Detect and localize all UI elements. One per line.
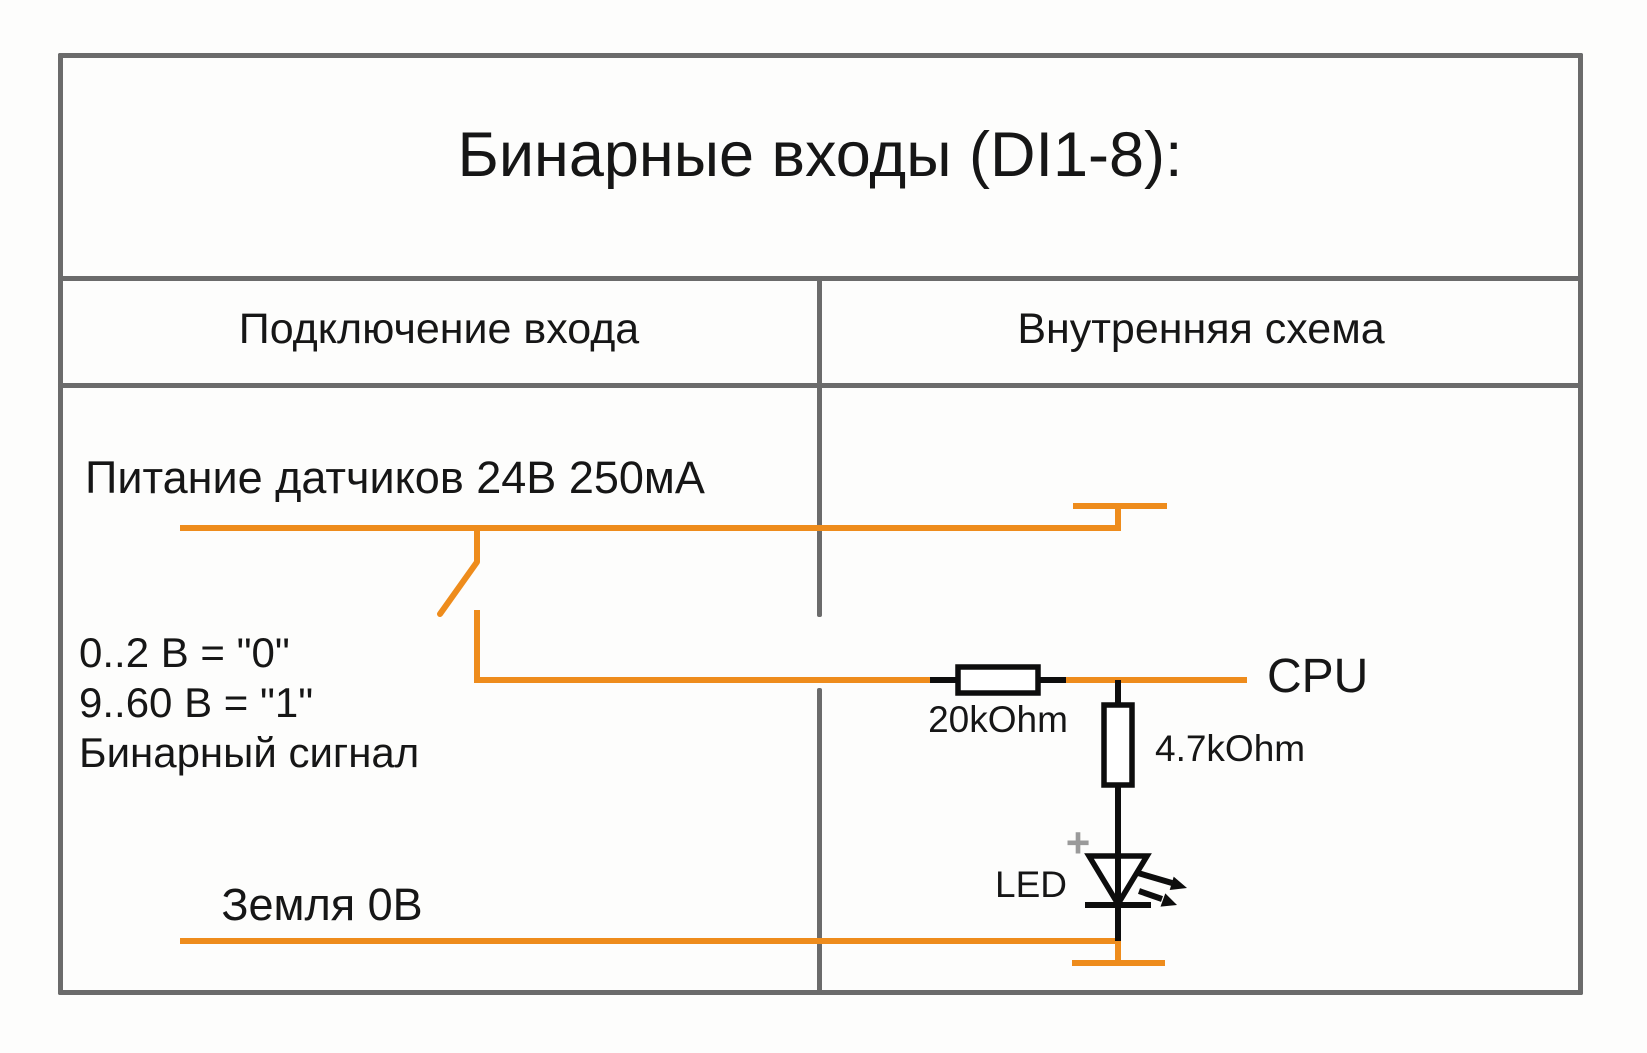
- power-rail-wire: [180, 506, 1167, 528]
- wiring-diagram-page: Бинарные входы (DI1-8): Подключение вход…: [0, 0, 1647, 1053]
- shunt-resistor-symbol: [1104, 680, 1132, 785]
- led-arrows-icon: [1138, 873, 1187, 907]
- series-resistor-symbol: [930, 667, 1066, 693]
- circuit-layer: [0, 0, 1647, 1053]
- led-symbol: [1085, 785, 1151, 941]
- switch-symbol: [440, 528, 932, 680]
- ground-rail-wire: [180, 941, 1165, 963]
